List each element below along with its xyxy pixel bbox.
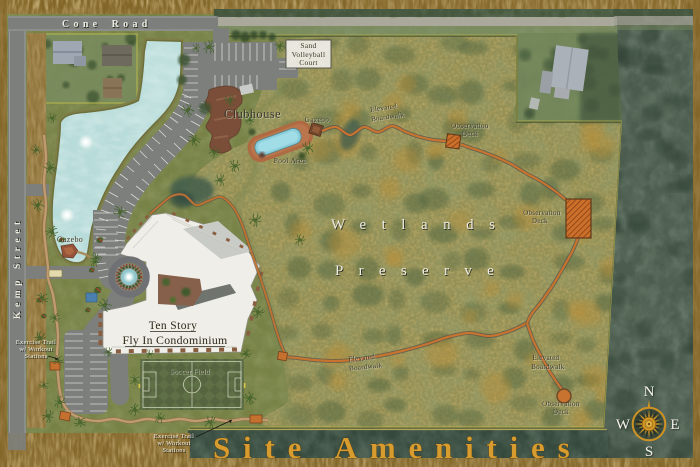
- svg-text:Clubhouse: Clubhouse: [224, 107, 281, 121]
- svg-text:Gazebo: Gazebo: [305, 115, 330, 124]
- svg-text:N: N: [644, 384, 655, 400]
- svg-text:Wetlands: Wetlands: [331, 217, 510, 233]
- svg-text:Pool Area: Pool Area: [274, 156, 307, 165]
- svg-text:E: E: [670, 417, 679, 433]
- svg-text:Stations: Stations: [24, 353, 48, 360]
- svg-text:W: W: [616, 417, 631, 433]
- svg-text:Deck: Deck: [532, 217, 548, 225]
- svg-text:K e m p S t r e e t: K e m p S t r e e t: [13, 221, 23, 319]
- svg-text:w/ Workout: w/ Workout: [157, 440, 191, 447]
- svg-text:Observation: Observation: [523, 209, 561, 217]
- svg-text:Ten Story: Ten Story: [149, 320, 197, 332]
- svg-text:Boardwalk: Boardwalk: [531, 363, 565, 371]
- svg-text:Fly In Condominium: Fly In Condominium: [122, 333, 227, 347]
- svg-text:Site Amenities: Site Amenities: [213, 430, 582, 465]
- svg-text:Court: Court: [299, 58, 318, 67]
- svg-text:Observation: Observation: [542, 400, 580, 408]
- svg-text:Exercise Trail: Exercise Trail: [16, 339, 57, 346]
- svg-text:S: S: [645, 444, 653, 460]
- svg-text:Gazebo: Gazebo: [57, 235, 83, 244]
- svg-text:Preserve: Preserve: [335, 263, 509, 279]
- svg-text:C o n e R o a d: C o n e R o a d: [62, 19, 148, 30]
- svg-text:Soccer Field: Soccer Field: [170, 368, 210, 376]
- svg-text:Deck: Deck: [553, 408, 569, 416]
- svg-text:Exercise Trail: Exercise Trail: [154, 433, 195, 440]
- svg-text:w/ Workout: w/ Workout: [19, 346, 53, 353]
- svg-text:Deck: Deck: [462, 130, 478, 138]
- svg-text:Stations: Stations: [162, 447, 186, 454]
- svg-text:Elevated: Elevated: [533, 354, 560, 362]
- svg-text:Sand: Sand: [300, 41, 316, 50]
- svg-text:Observation: Observation: [451, 122, 489, 130]
